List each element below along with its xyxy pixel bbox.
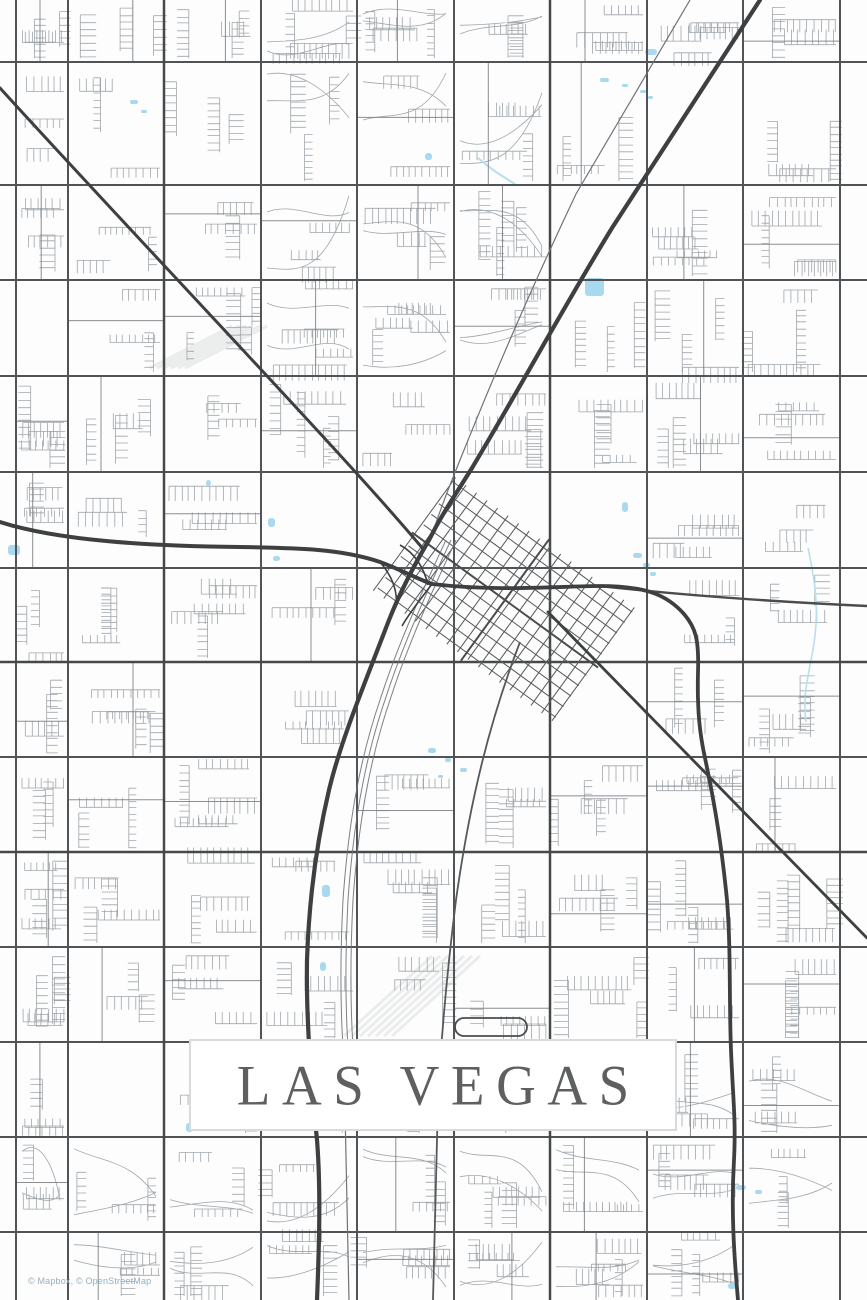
map-poster: LAS VEGAS © Mapbox, © OpenStreetMap: [0, 0, 867, 1300]
title-banner: LAS VEGAS: [189, 1039, 677, 1131]
poster-title: LAS VEGAS: [237, 1052, 641, 1118]
map-attribution: © Mapbox, © OpenStreetMap: [28, 1276, 151, 1286]
